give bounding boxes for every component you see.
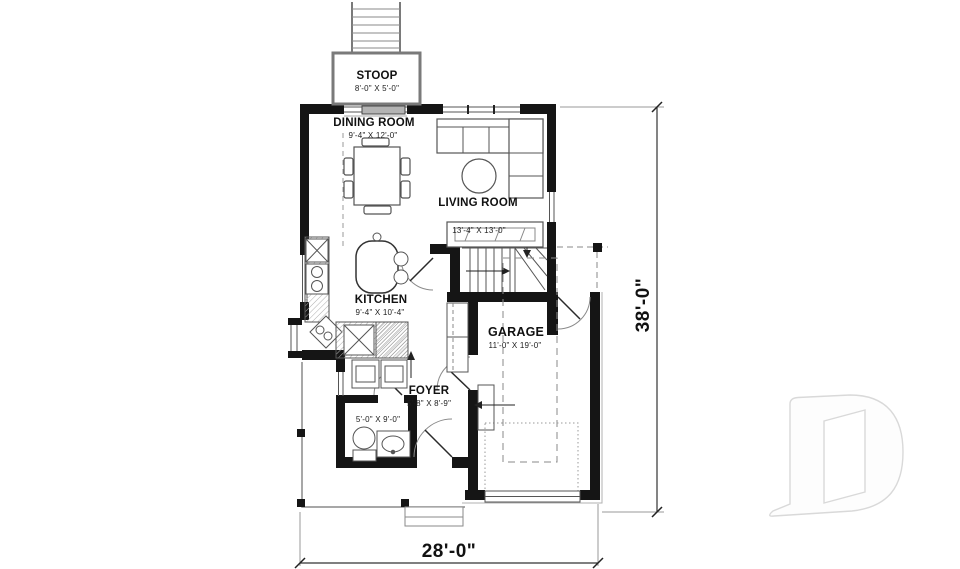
dotted-area: [485, 423, 578, 497]
garage-dims: 11'-0" X 19'-0": [489, 341, 542, 350]
stoop-stairs: [352, 9, 400, 48]
chair: [401, 158, 410, 175]
range-counter: [376, 322, 408, 358]
winder-arrow: [523, 250, 531, 258]
porch-steps: [405, 507, 463, 526]
floor-plan-drawing: [0, 0, 960, 569]
garage-step: [474, 385, 515, 430]
garage-door: [485, 491, 580, 502]
kitchen-island: [356, 233, 408, 293]
dining-furniture: [343, 133, 410, 248]
foyer-dims: 5'-8" X 8'-9": [407, 399, 451, 408]
kitchen-label: KITCHEN: [355, 294, 408, 306]
garage-details: [462, 243, 608, 503]
stoop-dims: 8'-0" X 5'-0": [355, 84, 399, 93]
kitchen-dims: 9'-4" X 10'-4": [356, 308, 405, 317]
overall-depth-dimension: 38'-0": [633, 278, 655, 333]
garage-label: GARAGE: [488, 325, 544, 339]
powder-room-dims: 5'-0" X 9'-0": [356, 415, 400, 424]
chair: [344, 181, 353, 198]
porch-post: [401, 499, 409, 507]
round-table: [462, 159, 496, 193]
sink-basin: [382, 436, 404, 452]
toilet-bowl: [353, 427, 375, 449]
dining-room-dims: 9'-4" X 12'-0": [349, 131, 398, 140]
sofa-vertical: [509, 119, 543, 198]
bathroom-fixtures: [353, 427, 410, 461]
stool: [394, 270, 408, 284]
foyer-label: FOYER: [409, 385, 450, 397]
chair: [364, 206, 391, 214]
living-room-dims: 13'-4" X 13'-0": [452, 226, 506, 235]
roof-corner-marker: [593, 243, 602, 252]
chair: [401, 181, 410, 198]
overall-width-dimension: 28'-0": [422, 541, 477, 563]
drummond-d-logo: [770, 395, 903, 516]
front-door: [414, 419, 452, 457]
laundry-units: [352, 360, 407, 388]
dining-room-label: DINING ROOM: [333, 117, 414, 129]
porch-post: [297, 499, 305, 507]
garage-side-door: [558, 297, 590, 329]
toilet-tank: [353, 450, 376, 461]
floor-plan-canvas: STOOP 8'-0" X 5'-0" DINING ROOM 9'-4" X …: [0, 0, 960, 569]
porch-post: [297, 429, 305, 437]
stoop-label: STOOP: [356, 70, 397, 82]
dining-table: [354, 147, 400, 205]
stool: [394, 252, 408, 266]
mudroom-closets: [447, 303, 468, 372]
chair: [344, 158, 353, 175]
living-room-label: LIVING ROOM: [436, 197, 520, 210]
stoop-door: [362, 106, 405, 114]
walls: [288, 104, 600, 500]
stove: [306, 264, 328, 294]
